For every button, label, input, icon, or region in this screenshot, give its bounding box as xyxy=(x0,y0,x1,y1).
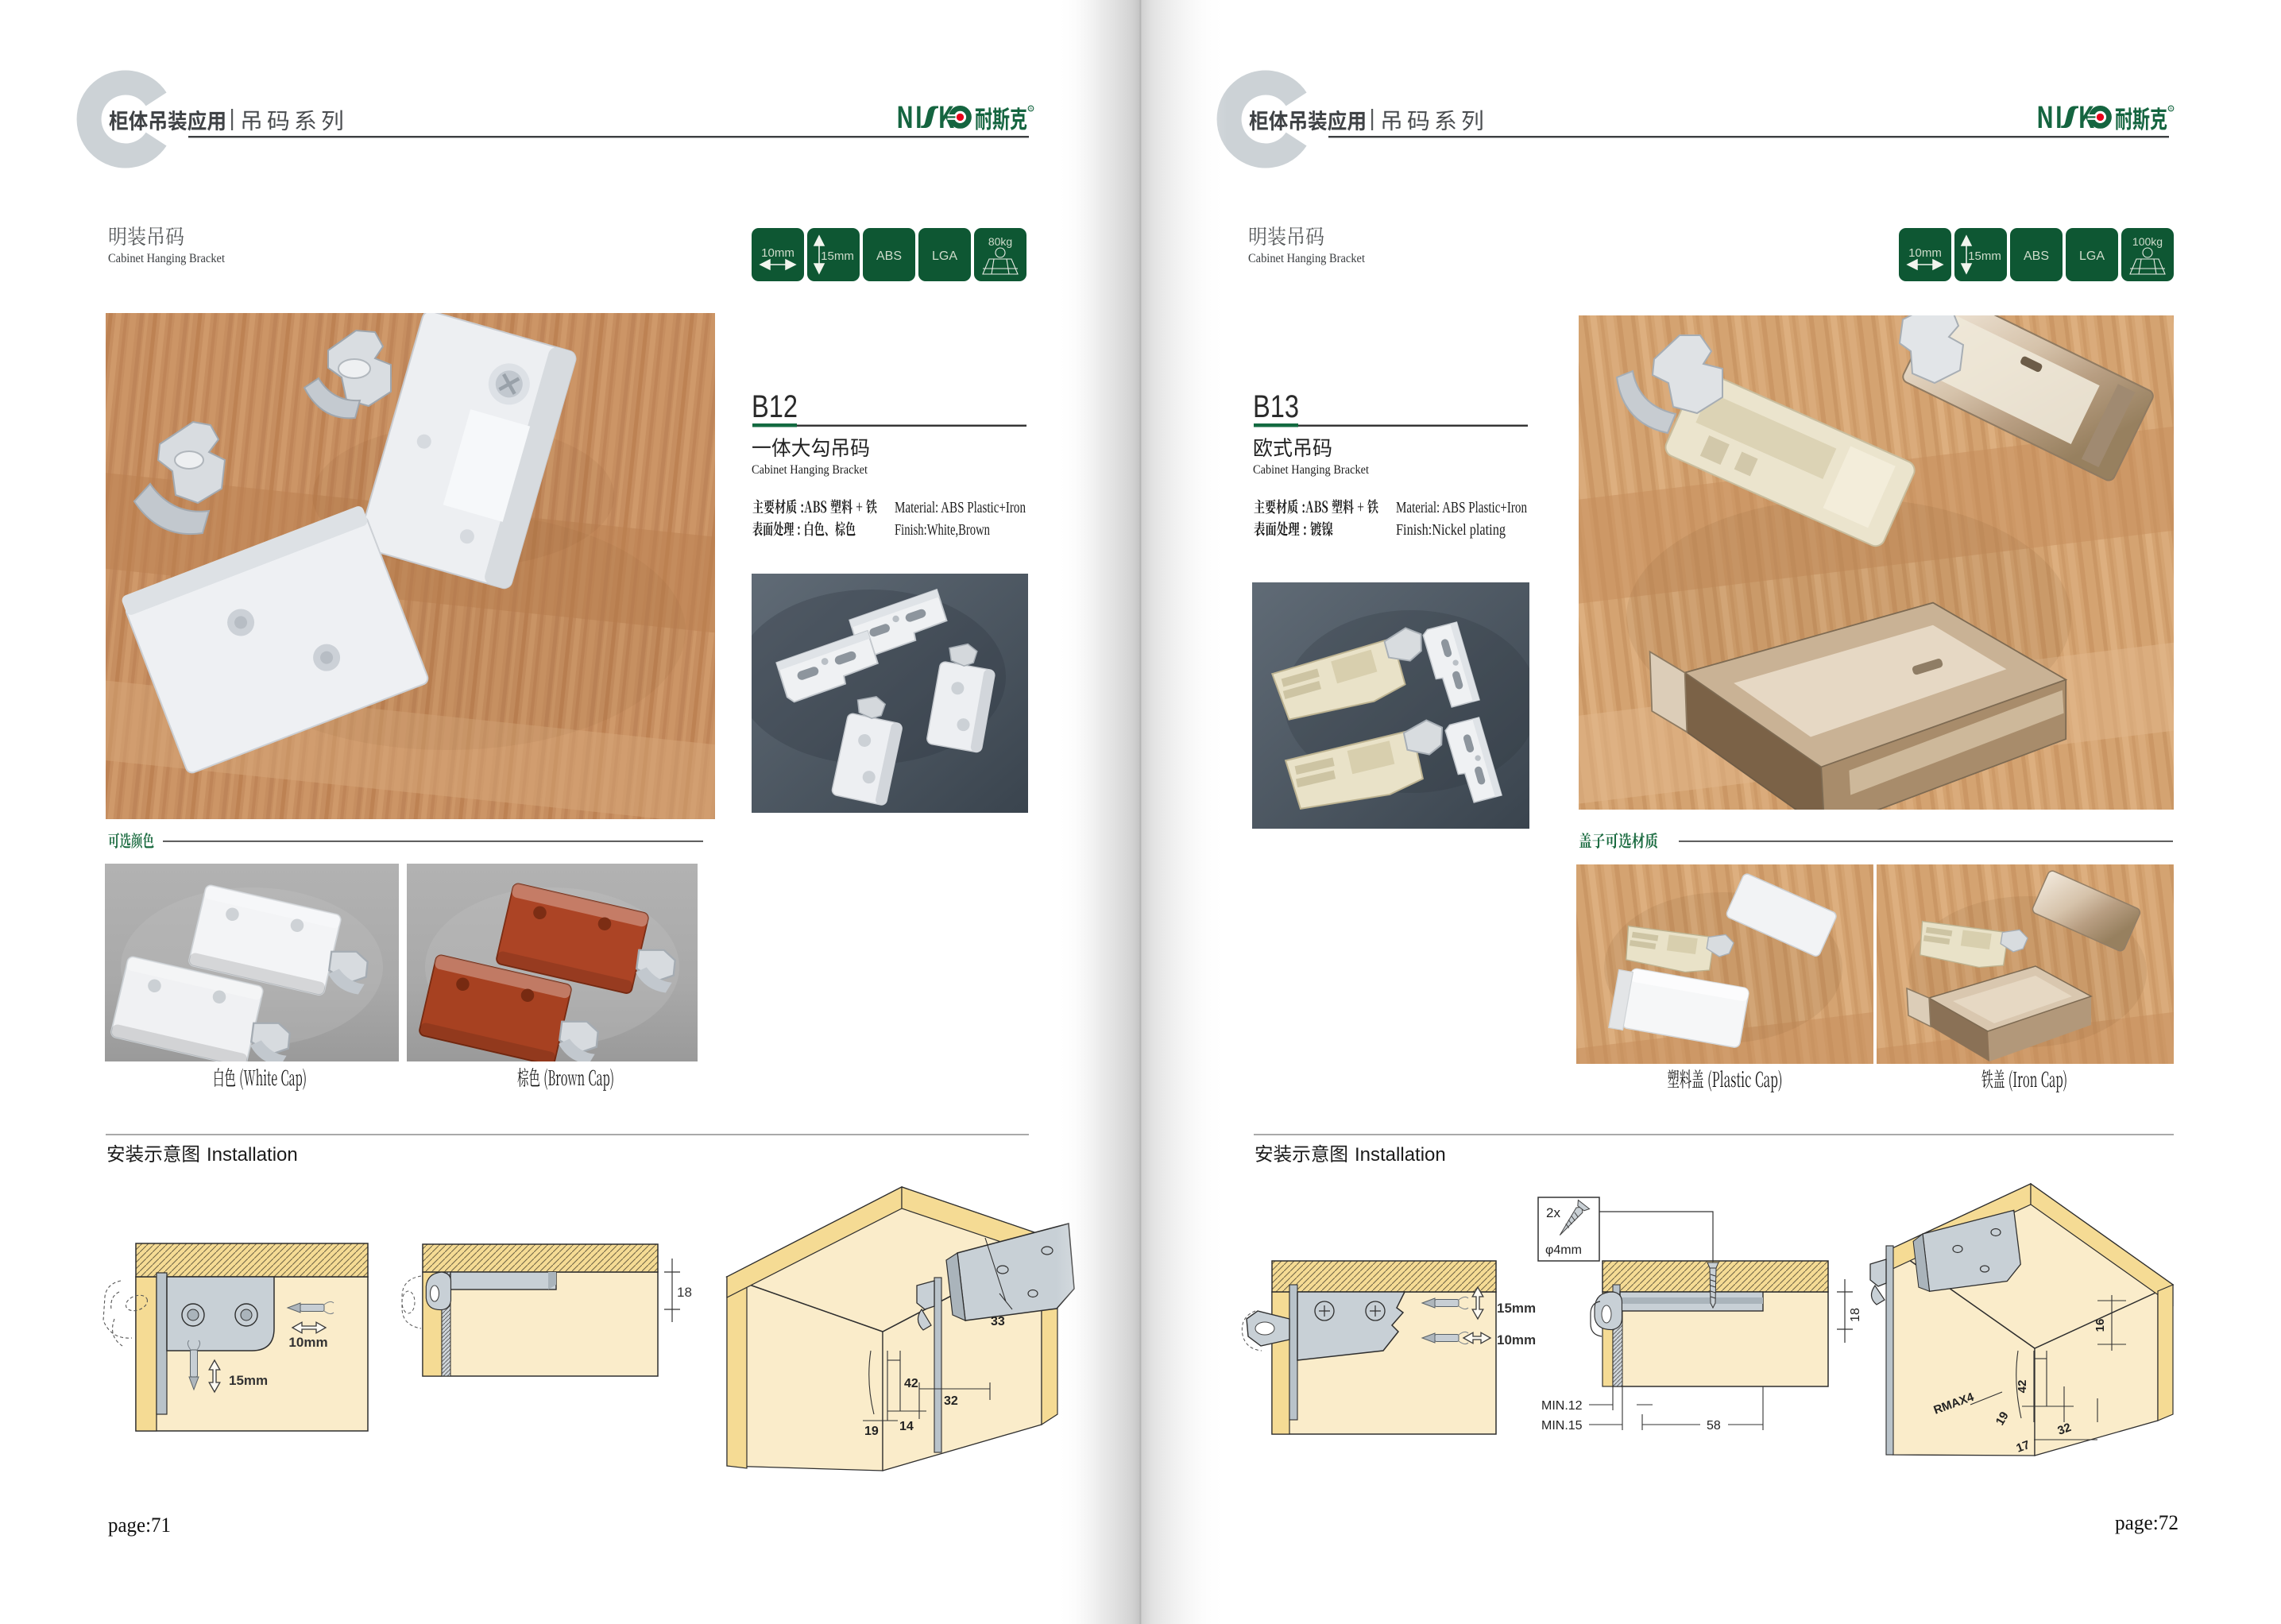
svg-text:ABS: ABS xyxy=(876,249,902,263)
svg-text:Installation: Installation xyxy=(1355,1144,1446,1166)
svg-text:MIN.12: MIN.12 xyxy=(1541,1399,1583,1413)
svg-text:page:71: page:71 xyxy=(108,1514,171,1537)
svg-text:B12: B12 xyxy=(752,389,798,424)
svg-text:Installation: Installation xyxy=(207,1144,298,1166)
svg-text:33: 33 xyxy=(991,1315,1005,1328)
svg-text:LGA: LGA xyxy=(932,249,957,263)
svg-text:B13: B13 xyxy=(1253,389,1299,424)
svg-text:32: 32 xyxy=(944,1394,958,1408)
svg-text:φ4mm: φ4mm xyxy=(1545,1243,1582,1257)
svg-text:Cabinet Hanging Bracket: Cabinet Hanging Bracket xyxy=(108,252,226,265)
svg-text:42: 42 xyxy=(904,1377,918,1390)
svg-text:10mm: 10mm xyxy=(288,1335,327,1350)
svg-text:15mm: 15mm xyxy=(1497,1301,1536,1316)
svg-text:15mm: 15mm xyxy=(1968,249,2001,263)
svg-text:42: 42 xyxy=(2016,1380,2029,1394)
svg-text:Finish:Nickel plating: Finish:Nickel plating xyxy=(1396,522,1506,539)
svg-text:18: 18 xyxy=(1849,1308,1862,1322)
svg-text:ABS: ABS xyxy=(2024,249,2049,263)
svg-text:14: 14 xyxy=(899,1420,914,1433)
svg-text:80kg: 80kg xyxy=(988,235,1012,248)
svg-text:16: 16 xyxy=(2093,1319,2107,1332)
svg-text:18: 18 xyxy=(677,1285,692,1300)
svg-text:Finish:White,Brown: Finish:White,Brown xyxy=(895,522,990,539)
svg-text:100kg: 100kg xyxy=(2132,235,2163,248)
svg-text:19: 19 xyxy=(864,1425,879,1438)
svg-text:Cabinet Hanging Bracket: Cabinet Hanging Bracket xyxy=(1248,252,1366,265)
svg-text:15mm: 15mm xyxy=(821,249,854,263)
svg-text:Cabinet Hanging Bracket: Cabinet Hanging Bracket xyxy=(752,463,868,477)
svg-text:page:72: page:72 xyxy=(2115,1511,2179,1534)
svg-text:10mm: 10mm xyxy=(761,246,794,260)
svg-text:2x: 2x xyxy=(1546,1205,1560,1220)
svg-text:10mm: 10mm xyxy=(1497,1332,1536,1348)
svg-text:58: 58 xyxy=(1707,1419,1721,1433)
svg-text:Material: ABS Plastic+Iron: Material: ABS Plastic+Iron xyxy=(1396,500,1527,516)
svg-text:10mm: 10mm xyxy=(1908,246,1942,260)
svg-text:LGA: LGA xyxy=(2079,249,2105,263)
svg-text:Material: ABS Plastic+Iron: Material: ABS Plastic+Iron xyxy=(895,500,1026,516)
svg-text:Cabinet Hanging Bracket: Cabinet Hanging Bracket xyxy=(1253,463,1370,477)
svg-text:15mm: 15mm xyxy=(229,1373,268,1388)
svg-text:MIN.15: MIN.15 xyxy=(1541,1419,1583,1433)
